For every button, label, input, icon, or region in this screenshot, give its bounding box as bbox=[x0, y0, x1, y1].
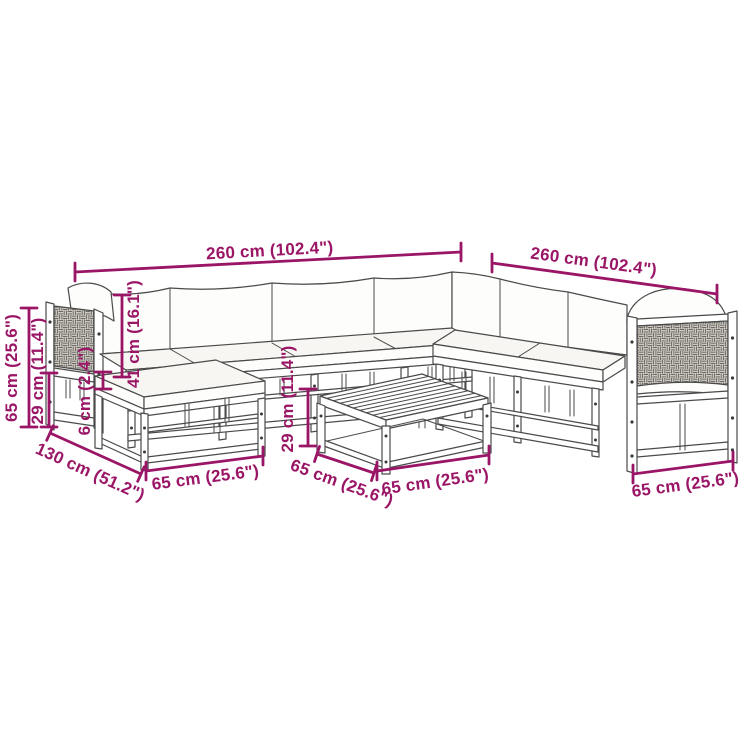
dimension-label: 65 cm (25.6") bbox=[2, 314, 21, 422]
dimension-label: 29 cm (11.4") bbox=[28, 317, 47, 424]
dimension-sofa-width-back: 260 cm (102.4") bbox=[75, 238, 461, 281]
right-armrest-rattan-panel bbox=[637, 321, 728, 390]
sofa-set-dimension-diagram: 260 cm (102.4") 260 cm (102.4") 65 cm (2… bbox=[0, 0, 750, 750]
dimension-end-section-width: 65 cm (25.6") bbox=[631, 452, 741, 501]
dimension-label: 260 cm (102.4") bbox=[529, 243, 658, 279]
dimension-label: 41 cm (16.1") bbox=[124, 280, 143, 388]
dimension-label: 65 cm (25.6") bbox=[151, 461, 261, 494]
right-armrest bbox=[627, 311, 737, 474]
dimension-label: 6 cm (2.4") bbox=[75, 347, 94, 436]
dimension-table-depth: 65 cm (25.6") bbox=[288, 447, 396, 511]
diagram-canvas: 260 cm (102.4") 260 cm (102.4") 65 cm (2… bbox=[0, 0, 750, 750]
dimension-label: 29 cm (11.4") bbox=[278, 345, 297, 452]
dimension-label: 130 cm (51.2") bbox=[33, 439, 148, 505]
dimension-label: 65 cm (25.6") bbox=[380, 465, 490, 499]
